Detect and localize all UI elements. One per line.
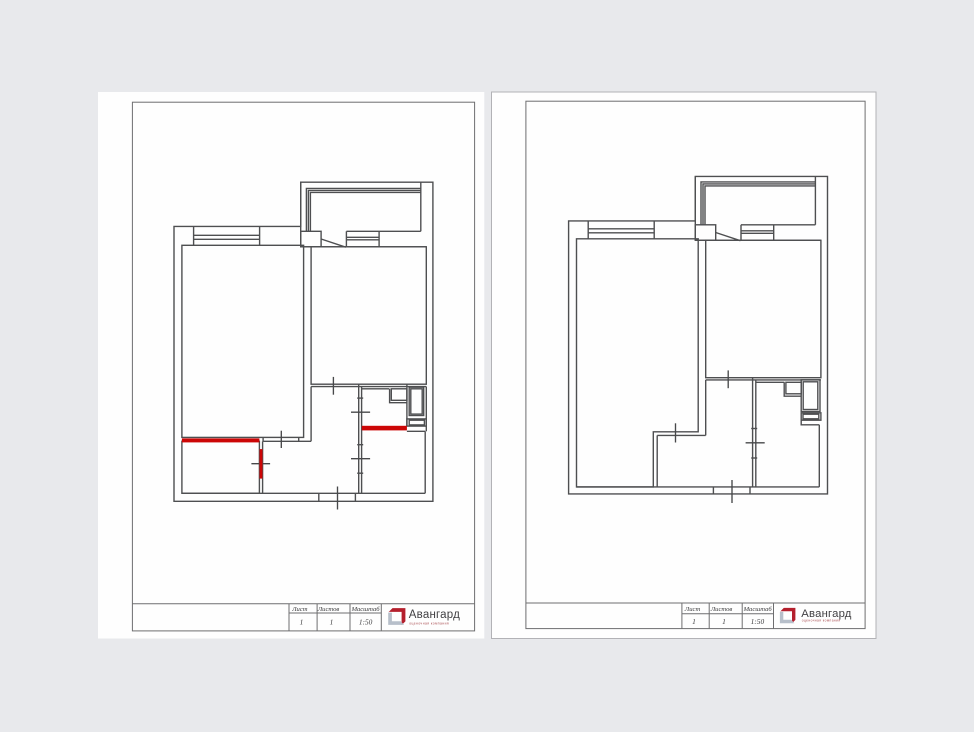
svg-text:1: 1 [692,617,696,626]
svg-text:оценочная компания: оценочная компания [802,619,841,623]
svg-text:Листов: Листов [710,606,733,613]
svg-text:Масштаб: Масштаб [743,606,773,613]
svg-text:1: 1 [722,617,726,626]
svg-text:Листов: Листов [317,606,340,613]
svg-text:Масштаб: Масштаб [351,606,381,613]
svg-text:Лист: Лист [291,606,308,613]
svg-text:Авангард: Авангард [409,609,460,621]
svg-text:1:50: 1:50 [359,618,373,627]
svg-text:Лист: Лист [684,606,701,613]
svg-text:1:50: 1:50 [751,617,765,626]
svg-text:1: 1 [330,618,334,627]
svg-text:оценочная компания: оценочная компания [409,621,449,625]
svg-text:1: 1 [300,618,304,627]
